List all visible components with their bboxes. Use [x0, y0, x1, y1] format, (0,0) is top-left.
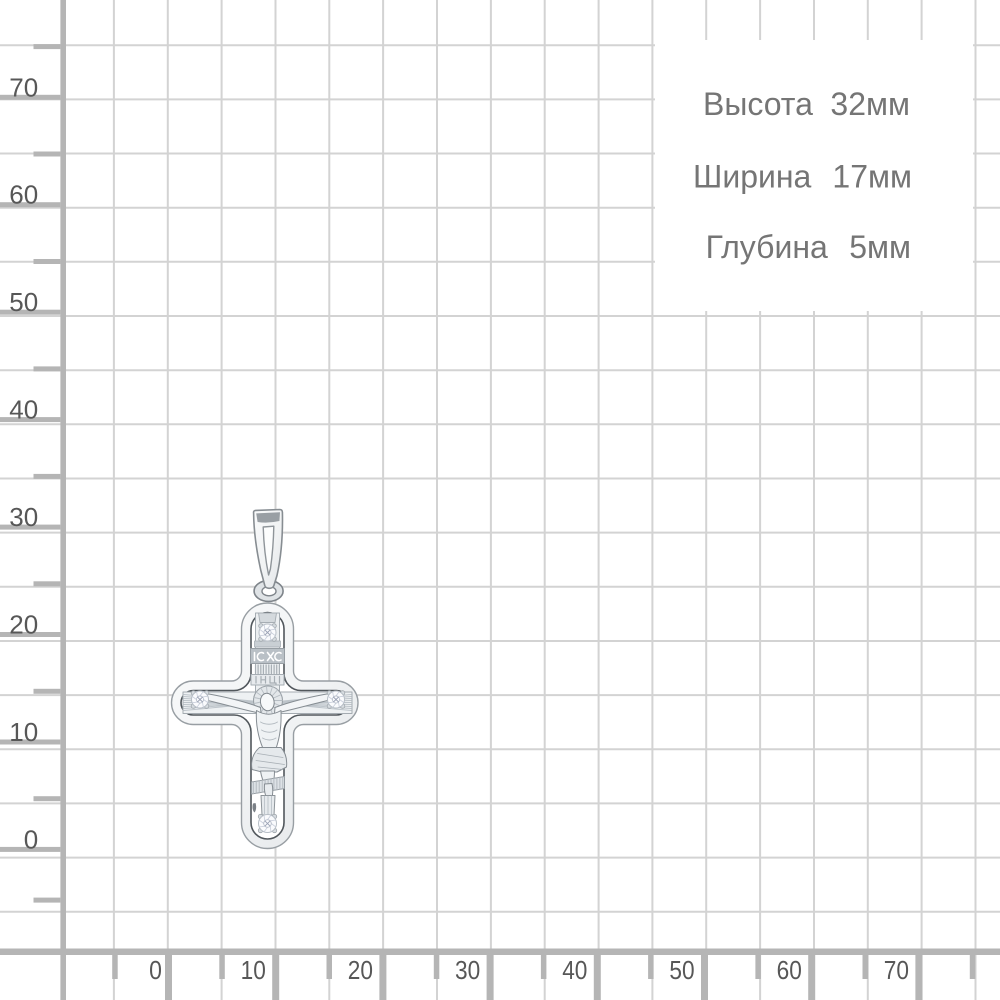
svg-text:5мм: 5мм — [849, 229, 911, 265]
svg-text:70: 70 — [884, 955, 909, 985]
svg-text:10: 10 — [9, 717, 38, 747]
svg-text:40: 40 — [562, 955, 587, 985]
svg-text:20: 20 — [348, 955, 373, 985]
svg-text:20: 20 — [9, 610, 38, 640]
svg-text:50: 50 — [669, 955, 694, 985]
svg-text:Высота: Высота — [703, 86, 813, 122]
svg-text:60: 60 — [9, 180, 38, 210]
svg-text:70: 70 — [9, 72, 38, 102]
svg-text:50: 50 — [9, 287, 38, 317]
svg-text:0: 0 — [24, 824, 38, 854]
svg-text:32мм: 32мм — [830, 86, 910, 122]
svg-text:Ширина: Ширина — [693, 159, 812, 195]
svg-text:Глубина: Глубина — [706, 229, 828, 265]
svg-text:30: 30 — [9, 502, 38, 532]
svg-text:0: 0 — [149, 955, 162, 985]
svg-text:40: 40 — [9, 395, 38, 425]
svg-text:30: 30 — [455, 955, 480, 985]
svg-text:17мм: 17мм — [832, 159, 912, 195]
svg-text:10: 10 — [241, 955, 266, 985]
svg-text:60: 60 — [777, 955, 802, 985]
